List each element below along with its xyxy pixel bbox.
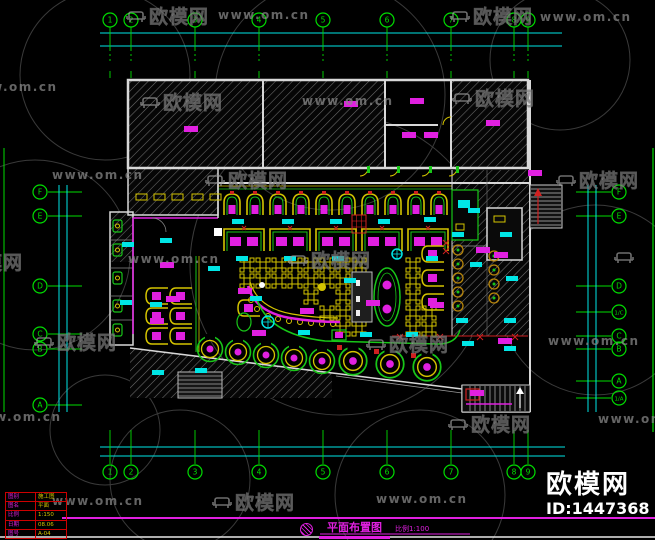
svg-text:1/A: 1/A <box>614 397 623 403</box>
svg-text:3: 3 <box>193 468 198 477</box>
drawing-scale: 比例1:100 <box>395 524 429 534</box>
cad-floorplan-image: 112233445566778899FEDCBAFED1/CCBA1/A 欧模网… <box>0 0 655 540</box>
floorplan-drawing: 112233445566778899FEDCBAFED1/CCBA1/A <box>0 0 655 540</box>
svg-text:9: 9 <box>526 16 531 25</box>
svg-text:1/C: 1/C <box>614 311 623 317</box>
svg-text:B: B <box>37 345 42 354</box>
title-block-label: 图名 <box>6 502 36 510</box>
drawing-title: 平面布置图 <box>319 519 390 539</box>
svg-text:8: 8 <box>512 16 517 25</box>
svg-text:1: 1 <box>108 16 113 25</box>
svg-text:3: 3 <box>193 16 198 25</box>
svg-text:D: D <box>616 282 622 291</box>
svg-text:B: B <box>616 345 621 354</box>
title-block-label: 日期 <box>6 521 36 529</box>
svg-text:E: E <box>617 212 622 221</box>
title-block-label: 图别 <box>6 493 36 501</box>
title-block-value: A-04 <box>36 530 66 538</box>
svg-text:C: C <box>616 332 621 341</box>
title-block-row: 比例1:150 <box>6 511 66 520</box>
svg-text:C: C <box>37 330 42 339</box>
title-block-row: 日期08.06 <box>6 521 66 530</box>
svg-text:F: F <box>617 188 621 197</box>
svg-text:6: 6 <box>385 16 390 25</box>
svg-text:4: 4 <box>257 16 262 25</box>
svg-text:9: 9 <box>526 468 531 477</box>
title-block-value: 施工图 <box>36 493 66 501</box>
title-block-value: 1:150 <box>36 511 66 519</box>
title-block-value: 平面 <box>36 502 66 510</box>
svg-text:D: D <box>37 282 43 291</box>
title-block-label: 图号 <box>6 530 36 538</box>
svg-text:6: 6 <box>385 468 390 477</box>
svg-text:A: A <box>37 401 43 410</box>
title-block-row: 图号A-04 <box>6 530 66 538</box>
title-bubble-icon <box>300 523 313 536</box>
title-block-table: 图别施工图图名平面比例1:150日期08.06图号A-04 <box>5 492 67 539</box>
svg-text:E: E <box>38 212 43 221</box>
svg-text:5: 5 <box>321 16 326 25</box>
svg-text:5: 5 <box>321 468 326 477</box>
svg-text:1: 1 <box>108 468 113 477</box>
svg-text:4: 4 <box>257 468 262 477</box>
title-block-value: 08.06 <box>36 521 66 529</box>
svg-text:2: 2 <box>129 468 134 477</box>
site-brand-text: 欧模网 <box>546 464 630 501</box>
svg-text:A: A <box>616 377 622 386</box>
title-block-row: 图名平面 <box>6 502 66 511</box>
svg-text:7: 7 <box>449 468 454 477</box>
svg-text:2: 2 <box>129 16 134 25</box>
svg-text:8: 8 <box>512 468 517 477</box>
model-id-text: ID:1447368 <box>546 499 650 518</box>
drawing-title-bar: 平面布置图 比例1:100 <box>300 519 429 539</box>
title-block-row: 图别施工图 <box>6 493 66 502</box>
svg-text:7: 7 <box>449 16 454 25</box>
svg-text:F: F <box>38 188 42 197</box>
title-block-label: 比例 <box>6 511 36 519</box>
